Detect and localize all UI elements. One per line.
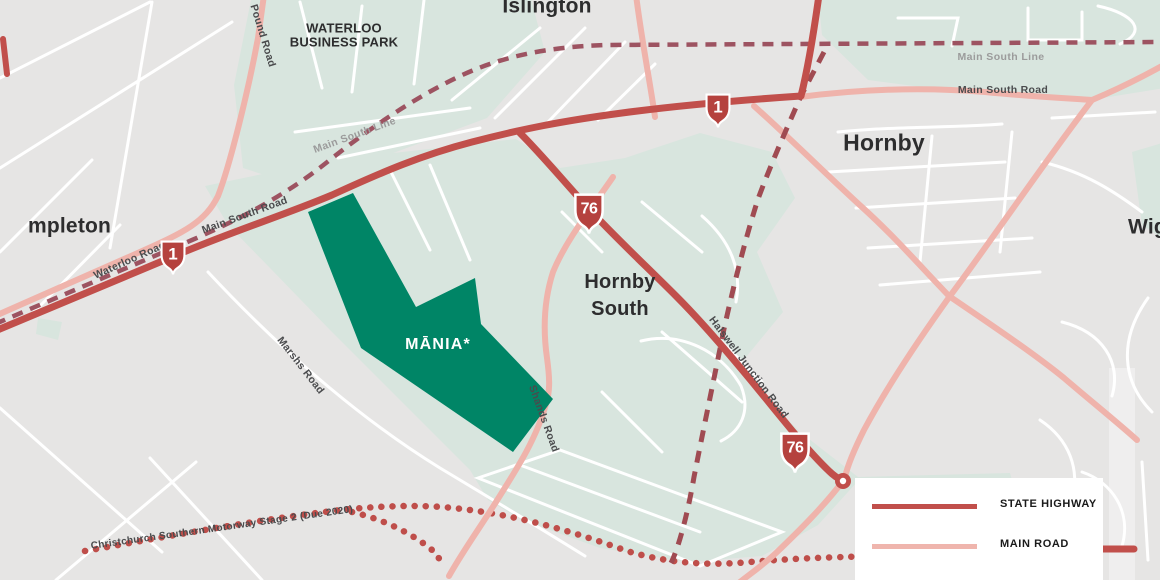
legend: STATE HIGHWAY MAIN ROAD (855, 478, 1103, 580)
site-label-mania: MĀNIA* (405, 336, 471, 354)
highway-shield-1-west: 1 (158, 239, 188, 276)
highway-shield-76-north: 76 (571, 192, 607, 235)
highway-shield-1-east: 1 (703, 92, 733, 129)
place-label-templeton: mpleton (28, 214, 111, 237)
main-road-swatch (872, 544, 977, 549)
place-label-hornby: Hornby (843, 130, 925, 155)
place-label-hornby-south: HornbySouth (584, 269, 655, 323)
state-highway-swatch (872, 504, 977, 509)
rail-label-main-south-line-east: Main South Line (957, 52, 1044, 64)
road-label-main-south-road-east: Main South Road (958, 85, 1048, 97)
legend-item-state-highway: STATE HIGHWAY (855, 496, 1103, 516)
legend-item-main-road: MAIN ROAD (855, 536, 1103, 556)
place-label-wigram: Wig (1128, 215, 1160, 238)
highway-shield-76-south: 76 (777, 431, 813, 474)
place-label-islington: Islington (502, 0, 591, 18)
map-canvas: Pound Road Main South Line Main South Li… (0, 0, 1160, 580)
place-label-waterloo-business-park: WATERLOOBUSINESS PARK (290, 22, 399, 51)
